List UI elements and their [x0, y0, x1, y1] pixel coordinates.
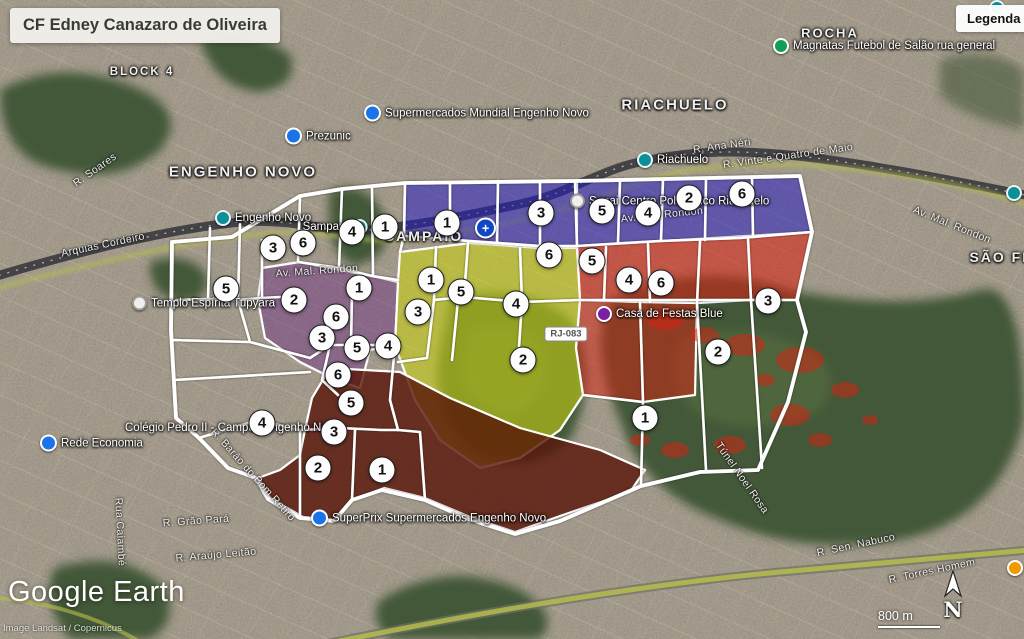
micro-area-marker[interactable]: 1: [369, 457, 396, 484]
poi-label[interactable]: Engenho Novo: [215, 210, 311, 226]
north-arrow-icon: [940, 570, 966, 598]
blue-pin-icon: [311, 510, 328, 527]
micro-area-marker[interactable]: 3: [405, 299, 432, 326]
poi-label-text: Riachuelo: [657, 154, 708, 166]
google-earth-logo: Google Earth: [8, 576, 185, 609]
blue-pin-icon: [40, 435, 57, 452]
micro-area-marker[interactable]: 5: [338, 390, 365, 417]
poi-label-text: Templo Espírita Tupyara: [151, 297, 275, 309]
poi-label-text: Magnatas Futebol de Salão rua general: [793, 40, 995, 52]
imagery-attribution: Image Landsat / Copernicus: [3, 623, 122, 634]
micro-area-marker[interactable]: 5: [579, 248, 606, 275]
blue-pin-icon: [364, 105, 381, 122]
poi-label[interactable]: Magnatas Futebol de Salão rua general: [773, 38, 995, 54]
micro-area-marker[interactable]: 1: [434, 210, 461, 237]
white-dot-icon: [570, 194, 585, 209]
station-icon: [1006, 185, 1022, 201]
map-canvas[interactable]: ENGENHO NOVOSAMPAIORIACHUELOROCHASÃO FRA…: [0, 0, 1024, 639]
poi-label[interactable]: São Fran: [1006, 185, 1024, 201]
micro-area-marker[interactable]: 3: [755, 288, 782, 315]
micro-area-marker[interactable]: 1: [372, 214, 399, 241]
poi-label[interactable]: Prezunic: [285, 128, 351, 145]
micro-area-marker[interactable]: 5: [589, 198, 616, 225]
micro-area-marker[interactable]: 4: [635, 200, 662, 227]
health-icon: +: [475, 218, 496, 239]
micro-area-marker[interactable]: 4: [375, 333, 402, 360]
poi-label[interactable]: Rede Economia: [40, 435, 143, 452]
micro-area-marker[interactable]: 4: [339, 219, 366, 246]
micro-area-marker[interactable]: 4: [503, 291, 530, 318]
compass-n-label: N: [938, 603, 968, 617]
purple-pin-icon: [596, 306, 612, 322]
micro-area-marker[interactable]: 6: [729, 181, 756, 208]
road-shield-rj083: RJ-083: [544, 327, 587, 342]
poi-label[interactable]: Templo Espírita Tupyara: [132, 296, 275, 311]
micro-area-marker[interactable]: 6: [536, 242, 563, 269]
micro-area-marker[interactable]: 2: [510, 347, 537, 374]
poi-label[interactable]: Colégio Pedro II - Campus Engenho Novo: [125, 422, 340, 434]
poi-label[interactable]: Supermercados Mundial Engenho Novo: [364, 105, 589, 122]
blue-pin-icon: [285, 128, 302, 145]
micro-area-marker[interactable]: 1: [418, 267, 445, 294]
poi-label[interactable]: Casa de Festas Blue: [596, 306, 723, 322]
poi-label-text: Prezunic: [306, 130, 351, 142]
micro-area-marker[interactable]: 6: [648, 270, 675, 297]
poi-label[interactable]: +: [475, 218, 496, 239]
poi-label[interactable]: SuperPrix Supermercados Engenho Novo: [311, 510, 546, 527]
poi-label-text: SuperPrix Supermercados Engenho Novo: [332, 512, 546, 524]
micro-area-marker[interactable]: 4: [616, 267, 643, 294]
micro-area-marker[interactable]: 3: [321, 419, 348, 446]
micro-area-marker[interactable]: 3: [309, 325, 336, 352]
micro-area-marker[interactable]: 1: [346, 275, 373, 302]
legend-button[interactable]: Legenda: [956, 5, 1024, 32]
white-dot-icon: [132, 296, 147, 311]
poi-label-text: Supermercados Mundial Engenho Novo: [385, 107, 589, 119]
poi-label[interactable]: Riachuelo: [637, 152, 708, 168]
micro-area-marker[interactable]: 2: [305, 455, 332, 482]
micro-area-marker[interactable]: 5: [448, 279, 475, 306]
scale-bar: 800 m: [878, 609, 940, 628]
poi-label-text: Engenho Novo: [235, 212, 311, 224]
micro-area-marker[interactable]: 4: [249, 410, 276, 437]
micro-area-marker[interactable]: 3: [528, 200, 555, 227]
orange-dot-icon: [1007, 560, 1023, 576]
green-dot-icon: [773, 38, 789, 54]
micro-area-marker[interactable]: 5: [213, 276, 240, 303]
station-icon: [637, 152, 653, 168]
scale-label: 800 m: [878, 609, 913, 623]
micro-area-marker[interactable]: 5: [344, 335, 371, 362]
poi-label[interactable]: Fabe: [1007, 560, 1024, 576]
micro-area-marker[interactable]: 2: [705, 339, 732, 366]
poi-label-text: Colégio Pedro II - Campus Engenho Novo: [125, 422, 340, 434]
micro-area-marker[interactable]: 3: [260, 235, 287, 262]
station-icon: [215, 210, 231, 226]
compass-north[interactable]: N: [938, 570, 968, 617]
map-title: CF Edney Canazaro de Oliveira: [10, 8, 280, 43]
poi-label-text: Rede Economia: [61, 437, 143, 449]
micro-area-marker[interactable]: 1: [632, 405, 659, 432]
micro-area-marker[interactable]: 6: [325, 362, 352, 389]
poi-label-text: Casa de Festas Blue: [616, 308, 723, 320]
micro-area-marker[interactable]: 6: [290, 230, 317, 257]
scale-line: [878, 626, 940, 628]
micro-area-marker[interactable]: 2: [281, 287, 308, 314]
micro-area-marker[interactable]: 2: [676, 185, 703, 212]
